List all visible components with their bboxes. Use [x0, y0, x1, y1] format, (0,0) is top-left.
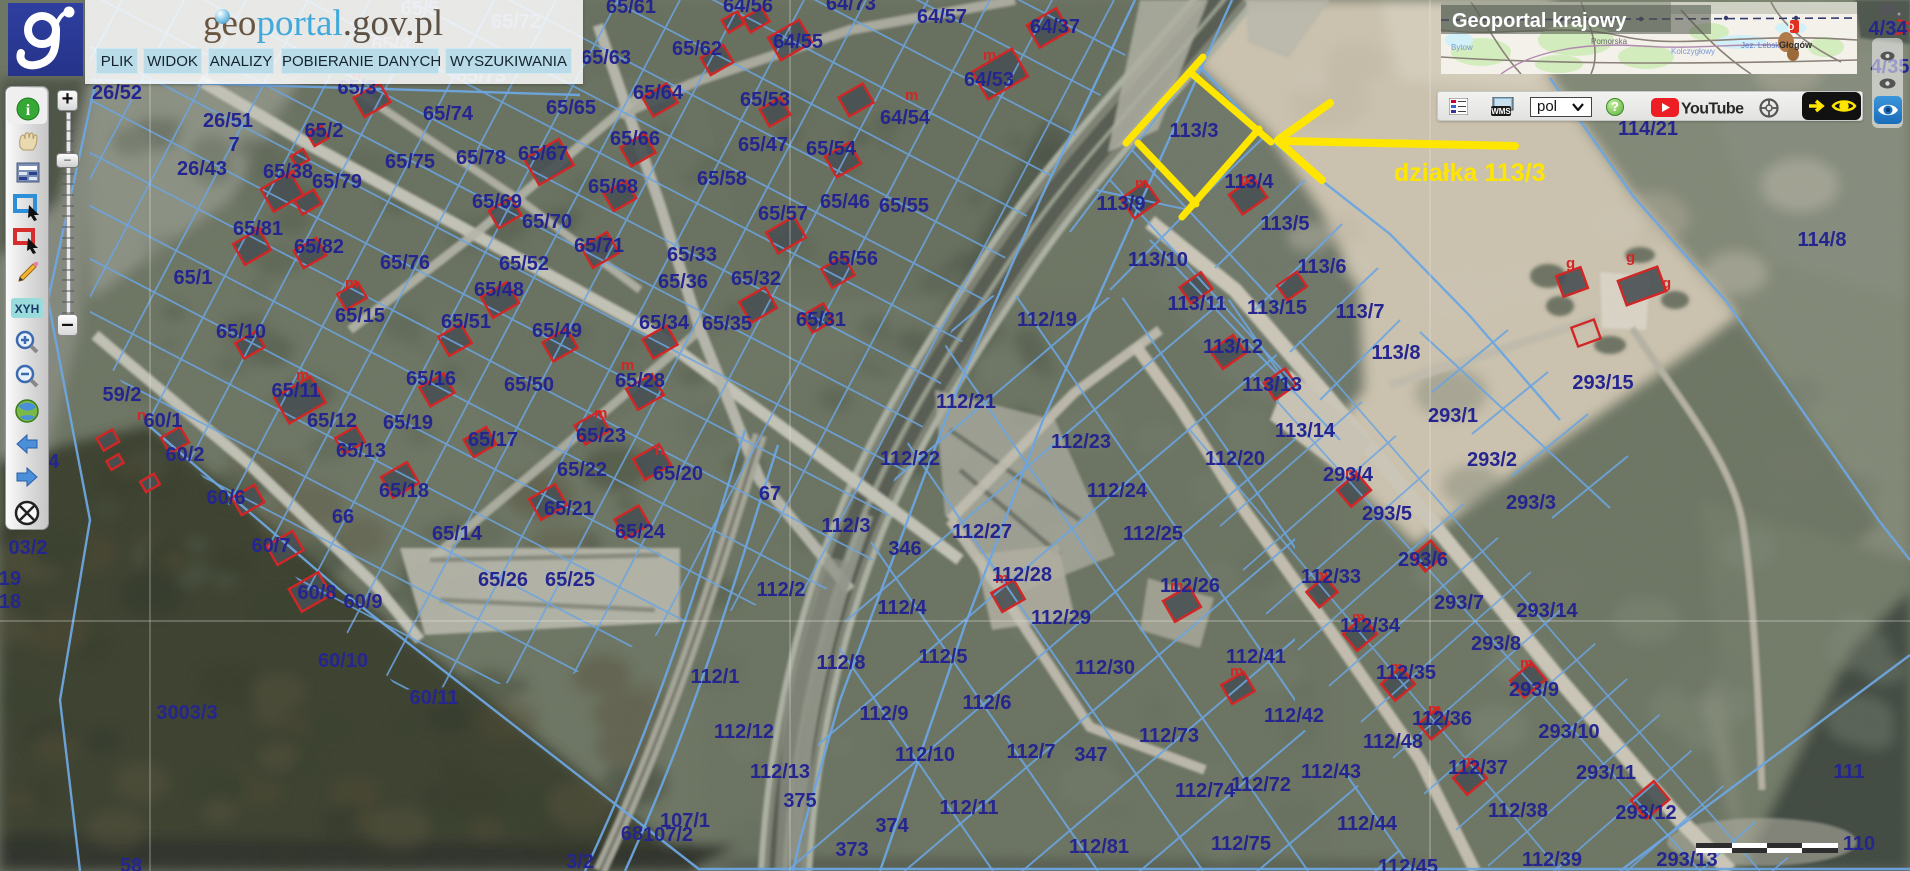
- svg-text:Geoportal krajowy: Geoportal krajowy: [1452, 10, 1627, 32]
- svg-text:działka 113/3: działka 113/3: [1394, 159, 1546, 187]
- svg-text:Bytow: Bytow: [1451, 43, 1473, 52]
- svg-text:i: i: [26, 102, 31, 119]
- svg-text:Głogów: Głogów: [1779, 40, 1813, 50]
- svg-text:Jez. Lebsko: Jez. Lebsko: [1741, 41, 1784, 50]
- svg-text:YouTube: YouTube: [1681, 101, 1744, 118]
- svg-text:XYH: XYH: [15, 302, 40, 316]
- svg-text:D: D: [1788, 22, 1795, 32]
- svg-text:WMS: WMS: [1491, 107, 1511, 116]
- svg-text:Kolczygłowy: Kolczygłowy: [1671, 47, 1715, 56]
- svg-text:Pomorska: Pomorska: [1591, 37, 1628, 46]
